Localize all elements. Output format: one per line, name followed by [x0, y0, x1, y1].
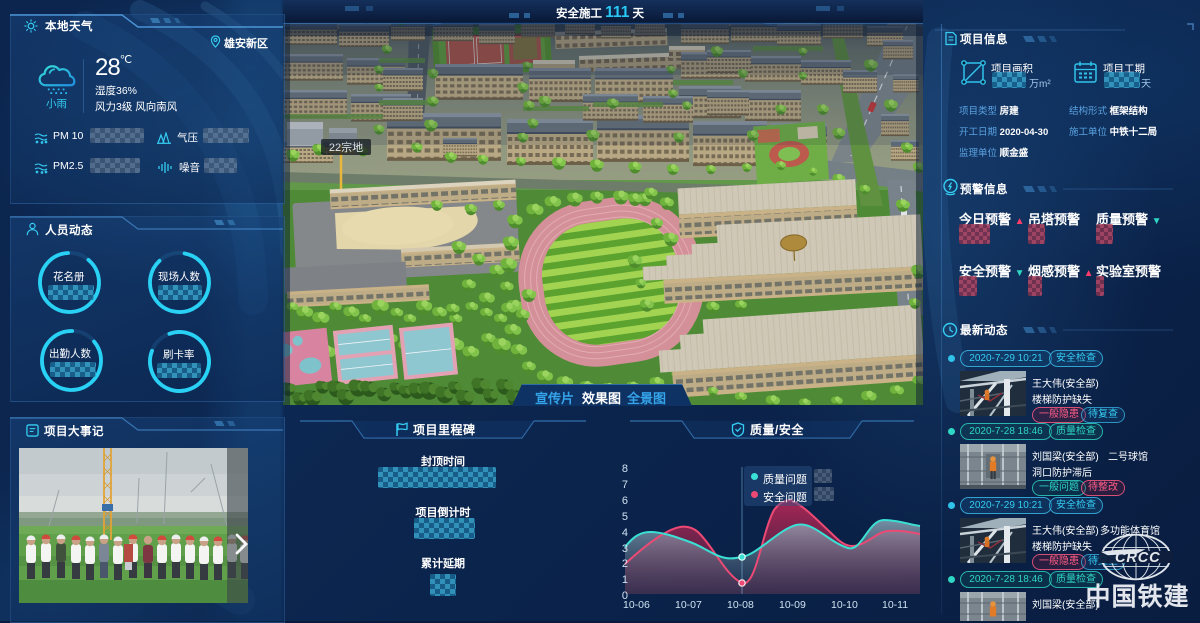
svg-text:CRCC: CRCC [1115, 550, 1161, 566]
